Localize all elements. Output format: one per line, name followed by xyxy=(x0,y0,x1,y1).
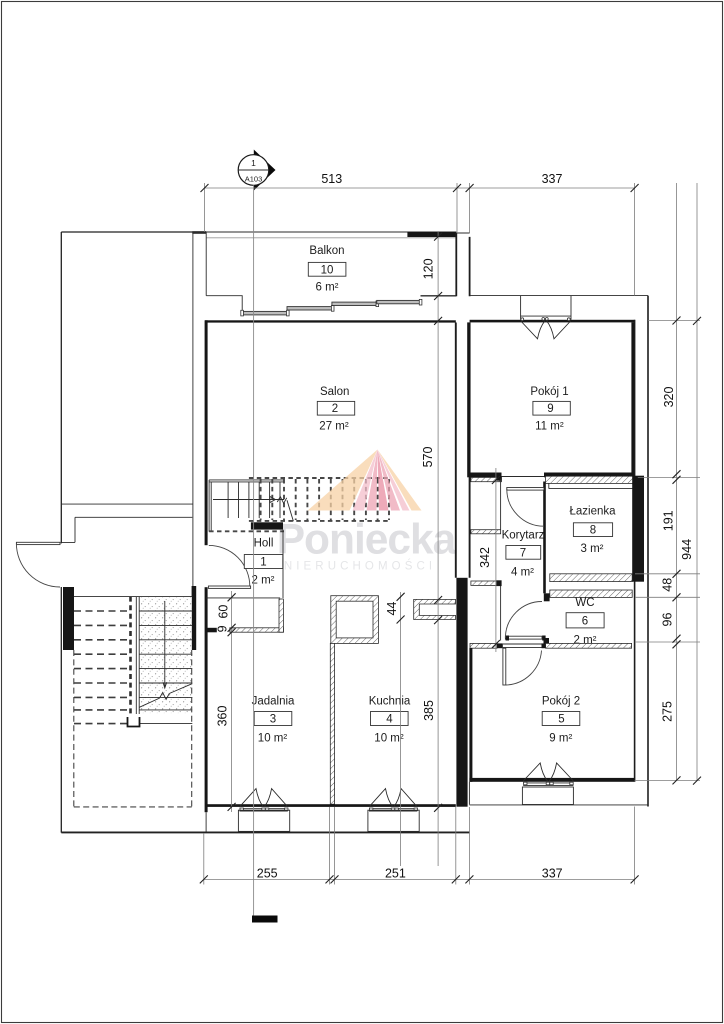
svg-text:Jadalnia: Jadalnia xyxy=(252,695,295,707)
svg-text:9 m²: 9 m² xyxy=(549,732,572,744)
svg-text:1: 1 xyxy=(260,557,266,569)
svg-text:Korytarz: Korytarz xyxy=(502,529,545,541)
svg-text:120: 120 xyxy=(421,258,435,279)
svg-text:7: 7 xyxy=(520,547,526,559)
svg-text:96: 96 xyxy=(660,613,674,627)
svg-text:9: 9 xyxy=(216,625,230,632)
svg-text:60: 60 xyxy=(216,605,230,619)
svg-text:385: 385 xyxy=(422,700,436,721)
svg-text:337: 337 xyxy=(542,172,563,186)
svg-text:10 m²: 10 m² xyxy=(374,732,404,744)
svg-text:275: 275 xyxy=(660,701,674,722)
svg-text:Salon: Salon xyxy=(320,386,349,398)
svg-text:Pokój 2: Pokój 2 xyxy=(542,695,580,707)
svg-text:320: 320 xyxy=(662,387,676,408)
svg-text:27 m²: 27 m² xyxy=(319,421,349,433)
svg-text:4: 4 xyxy=(386,714,393,726)
svg-text:4 m²: 4 m² xyxy=(511,567,534,579)
svg-text:48: 48 xyxy=(660,578,674,592)
svg-text:Łazienka: Łazienka xyxy=(569,505,616,517)
svg-text:5: 5 xyxy=(558,714,564,726)
svg-text:6: 6 xyxy=(582,615,588,627)
svg-text:2 m²: 2 m² xyxy=(252,575,275,587)
svg-text:WC: WC xyxy=(575,597,594,609)
svg-text:Holl: Holl xyxy=(254,537,274,549)
svg-text:337: 337 xyxy=(542,866,563,880)
svg-text:944: 944 xyxy=(680,539,694,560)
svg-text:570: 570 xyxy=(421,447,435,468)
svg-text:251: 251 xyxy=(385,866,406,880)
svg-text:Balkon: Balkon xyxy=(309,245,344,257)
svg-text:342: 342 xyxy=(478,547,492,568)
svg-text:10: 10 xyxy=(321,264,334,276)
svg-text:Pokój 1: Pokój 1 xyxy=(530,386,568,398)
svg-text:NIERUCHOMOŚCI: NIERUCHOMOŚCI xyxy=(284,560,436,573)
svg-text:513: 513 xyxy=(321,172,342,186)
svg-text:191: 191 xyxy=(662,510,676,531)
svg-text:44: 44 xyxy=(385,602,399,616)
svg-text:A103: A103 xyxy=(245,175,263,184)
svg-text:11 m²: 11 m² xyxy=(535,421,564,433)
svg-text:2: 2 xyxy=(332,403,338,415)
svg-text:3: 3 xyxy=(270,714,276,726)
svg-text:Kuchnia: Kuchnia xyxy=(369,695,411,707)
svg-text:10 m²: 10 m² xyxy=(258,732,288,744)
svg-text:360: 360 xyxy=(216,706,230,727)
svg-text:255: 255 xyxy=(257,866,278,880)
svg-text:9: 9 xyxy=(547,403,553,415)
svg-text:3 m²: 3 m² xyxy=(581,543,604,555)
svg-text:6 m²: 6 m² xyxy=(316,281,339,293)
svg-text:1: 1 xyxy=(251,158,256,168)
svg-text:8: 8 xyxy=(590,525,596,537)
svg-text:Poniecka: Poniecka xyxy=(277,517,457,564)
